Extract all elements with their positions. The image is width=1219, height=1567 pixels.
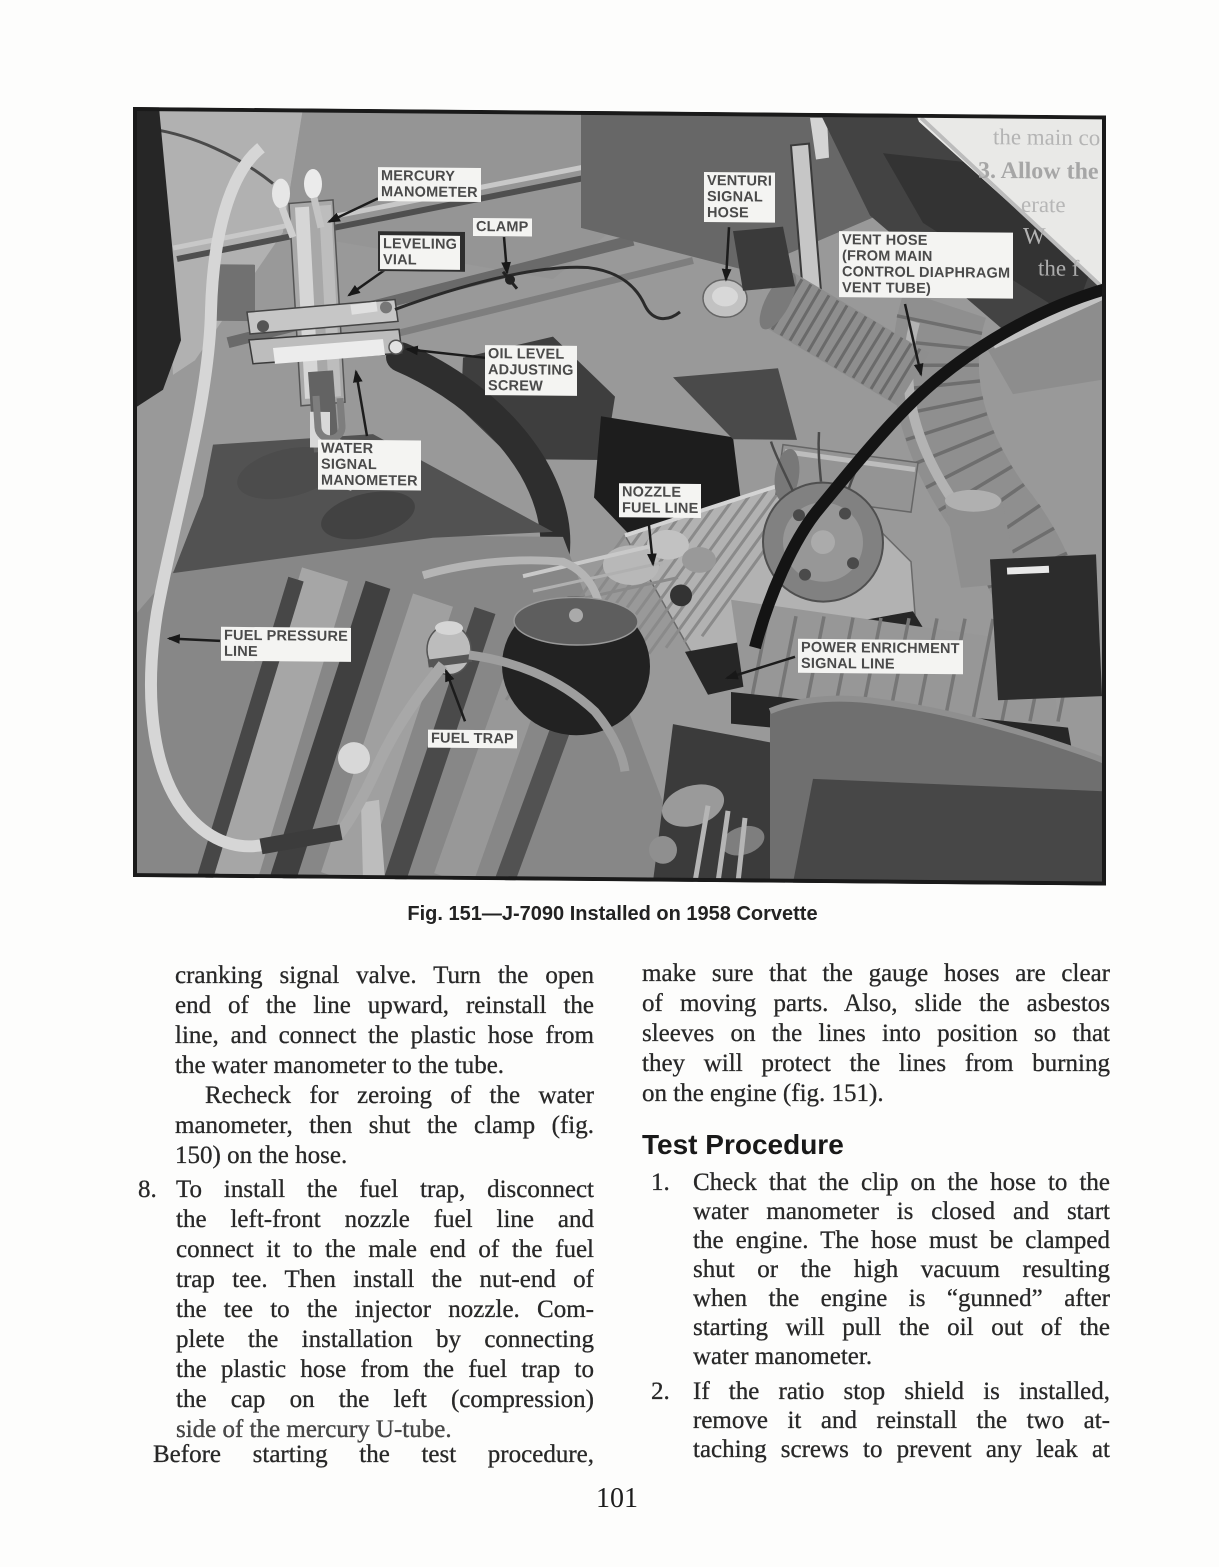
svg-text:the f: the f (1038, 256, 1080, 281)
svg-text:3. Allow the: 3. Allow the (978, 158, 1099, 185)
svg-text:W: W (1023, 224, 1046, 250)
svg-text:erate: erate (1021, 192, 1066, 217)
svg-text:the main co: the main co (993, 124, 1100, 150)
